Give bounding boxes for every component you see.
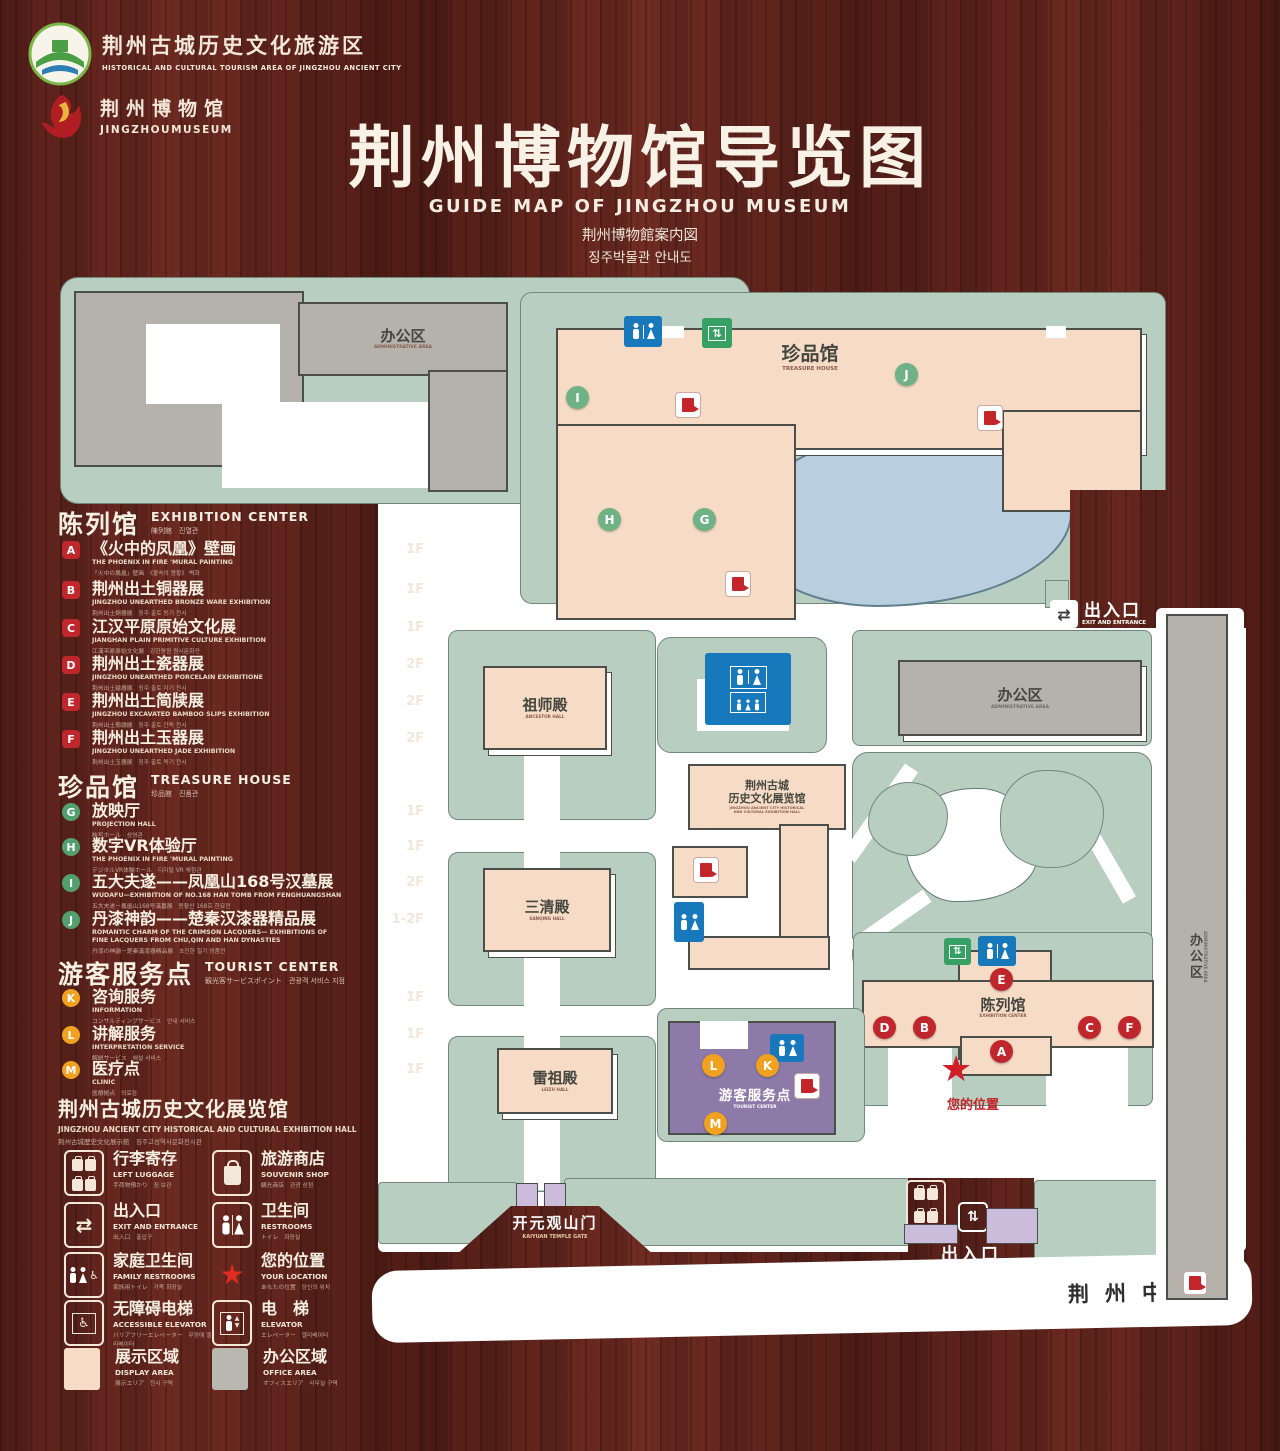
section-title-sub: 陳列館 진열관 (151, 526, 309, 536)
legend-item-l: L 讲解服务 INTERPRETATION SERVICE 解説サービス 해설 … (62, 1025, 362, 1062)
sanqing-hall-en: SANQING HALL (524, 917, 569, 922)
left-luggage-icon-map (906, 1180, 946, 1228)
leizu-hall-en: LEIZU HALL (532, 1088, 577, 1093)
badge-f: F (62, 730, 80, 748)
admin-building-north: 办公区 ADMINISTRATIVE AREA (298, 302, 508, 376)
treasure-house-south-wing (556, 424, 796, 620)
display-area-swatch (64, 1348, 100, 1390)
map-marker-f: F (1118, 1016, 1141, 1039)
map-marker-g: G (693, 508, 716, 531)
tourism-area-logo (28, 22, 92, 86)
elevator-arrows-icon-exit: ⇅ (958, 1202, 988, 1232)
badge-i: I (62, 874, 80, 892)
admin-right-cn: 办公区 (997, 686, 1042, 704)
tourism-area-emblem-icon (28, 22, 92, 86)
legend-your-location: ★ 您的位置 YOUR LOCATION あなたの位置 당신의 위치 (212, 1252, 362, 1298)
legend-item-f: F 荆州出土玉器展 JINGZHOU UNEARTHED JADE EXHIBI… (62, 729, 362, 766)
legend-item-d: D 荆州出土瓷器展 JINGZHOU UNEARTHED PORCELAIN E… (62, 655, 362, 692)
legend-accessible-elevator: ♿ 无障碍电梯 ACCESSIBLE ELEVATOR バリアフリーエレベーター… (64, 1300, 214, 1348)
exhibition-hall-south-bar (688, 936, 830, 970)
legend-elevator: ▲▼ 电 梯 ELEVATOR エレベーター 엘리베이터 (212, 1300, 362, 1346)
tourist-center-label: 游客服务点 TOURIST CENTER (690, 1084, 820, 1110)
exit-entrance-icon: ⇄ (64, 1202, 104, 1248)
legend-item-h: H 数字VR体验厅 THE PHOENIX IN FIRE 'MURAL PAI… (62, 837, 362, 874)
exhibition-hall-building: 荆州古城 历史文化展览馆 JINGZHOU ANCIENT CITY HISTO… (688, 764, 846, 830)
family-restrooms-icon: ♿ (64, 1252, 104, 1298)
legend-item-a: A 《火中的凤凰》壁画 THE PHOENIX IN FIRE 'MURAL P… (62, 540, 362, 577)
legend-item-b: B 荆州出土铜器展 JINGZHOU UNEARTHED BRONZE WARE… (62, 580, 362, 617)
elevator-icon-treasure: ⇅ (702, 318, 732, 348)
exit-marker-icon (1184, 1272, 1206, 1294)
your-location-star-icon: ★ (940, 1052, 972, 1088)
restroom-family-icon-center (705, 653, 791, 725)
admin-strip-label-en: ADMINISTRATIVE AREA (1203, 931, 1208, 983)
legend-display-area: 展示区域 DISPLAY AREA 展示エリア 전시 구역 (64, 1348, 214, 1390)
hall-title-en: JINGZHOU ANCIENT CITY HISTORICAL AND CUL… (58, 1125, 418, 1134)
map-marker-j: J (895, 363, 918, 386)
ancestor-hall-building: 祖师殿 ANCESTOR HALL (483, 666, 607, 750)
shopping-bag-icon (212, 1150, 252, 1196)
tourist-center-notch (700, 1021, 748, 1049)
gate-label-cn: 开元观山门 (440, 1212, 670, 1233)
map-marker-e: E (990, 968, 1013, 991)
admin-right-en: ADMINISTRATIVE AREA (991, 705, 1049, 710)
legend-souvenir-shop: 旅游商店 SOUVENIR SHOP 観光商店 관광 상점 (212, 1150, 362, 1196)
location-star-icon: ★ (212, 1252, 252, 1298)
legend-item-g: G 放映厅 PROJECTION HALL 映写ホール 상영관 1F (62, 802, 362, 839)
admin-right-building: 办公区 ADMINISTRATIVE AREA (898, 660, 1142, 736)
badge-k: K (62, 989, 80, 1007)
admin-strip-label-cn: 办公区 (1186, 933, 1201, 981)
badge-e: E (62, 693, 80, 711)
treasure-label-en: TREASURE HOUSE (726, 366, 894, 372)
leizu-hall-cn: 雷祖殿 (532, 1069, 577, 1087)
legend-section-treasure-house: 珍品馆 TREASURE HOUSE 珍品館 진품관 (58, 768, 292, 804)
hall-title-cn: 荆州古城历史文化展览馆 (58, 1093, 418, 1122)
map-marker-a: A (990, 1040, 1013, 1063)
office-area-swatch (212, 1348, 248, 1390)
legend-office-area: 办公区域 OFFICE AREA オフィスエリア 사무실 구역 (212, 1348, 362, 1390)
page-subtitle-ja: 荆州博物館案内図 (180, 224, 1100, 245)
section-title-en: EXHIBITION CENTER (151, 509, 309, 524)
tourist-center-cn: 游客服务点 (690, 1084, 820, 1104)
page-subtitle-en: GUIDE MAP OF JINGZHOU MUSEUM (180, 196, 1100, 217)
exhibition-hall-cn1: 荆州古城 (729, 780, 806, 793)
legend-item-j: J 丹漆神韵——楚秦汉漆器精品展 ROMANTIC CHARM OF THE C… (62, 910, 362, 955)
exhibition-center-en: EXHIBITION CENTER (958, 1014, 1048, 1019)
legend-restrooms: 卫生间 RESTROOMS トイレ 화장실 (212, 1202, 362, 1248)
exhibition-hall-en2: AND CULTURAL EXHIBITION HALL (729, 810, 806, 814)
temple-axis-path (524, 748, 560, 1190)
legend-item-m: M 医疗点 CLINIC 医療拠点 의료점 1F (62, 1060, 362, 1097)
admin-top-label-en: ADMINISTRATIVE AREA (374, 345, 432, 350)
guide-map-board: 荆州古城历史文化旅游区 HISTORICAL AND CULTURAL TOUR… (0, 0, 1280, 1451)
badge-l: L (62, 1026, 80, 1044)
office-strip-building: 办公区 ADMINISTRATIVE AREA (1166, 614, 1228, 1300)
left-luggage-icon (64, 1150, 104, 1196)
hall-title-sub: 荆州古城歴史文化展示館 징주고성역사문화전시관 (58, 1136, 418, 1146)
badge-j: J (62, 911, 80, 929)
treasure-roof-notch-2 (1046, 326, 1066, 338)
your-location-label: 您的位置 (918, 1094, 1028, 1113)
legend-section-exhibition-center: 陈列馆 EXHIBITION CENTER 陳列館 진열관 (58, 505, 309, 541)
exhibition-hall-cn2: 历史文化展览馆 (729, 793, 806, 806)
gate-label: 开元观山门 KAIYUAN TEMPLE GATE (440, 1212, 670, 1240)
restroom-icon-center-small (674, 902, 704, 942)
page-subtitle-ko: 징주박물관 안내도 (180, 246, 1100, 266)
road: 荆州中路 (371, 1253, 1252, 1343)
badge-g: G (62, 803, 80, 821)
exit-marker-icon (978, 406, 1002, 430)
tourism-area-title: 荆州古城历史文化旅游区 HISTORICAL AND CULTURAL TOUR… (102, 30, 401, 72)
tourism-area-name-en: HISTORICAL AND CULTURAL TOURISM AREA OF … (102, 64, 401, 72)
legend-left-luggage: 行李寄存 LEFT LUGGAGE 手荷物預かり 짐 보관 (64, 1150, 214, 1196)
badge-d: D (62, 656, 80, 674)
map-marker-m: M (704, 1112, 727, 1135)
ancestor-hall-en: ANCESTOR HALL (522, 715, 567, 720)
phoenix-icon (38, 90, 86, 142)
badge-c: C (62, 619, 80, 637)
gate-building-exit-south (986, 1208, 1038, 1244)
legend-hall-title: 荆州古城历史文化展览馆 JINGZHOU ANCIENT CITY HISTOR… (58, 1093, 418, 1146)
legend-exit-entrance: ⇄ 出入口 EXIT AND ENTRANCE 出入口 출입구 (64, 1202, 214, 1248)
admin-courtyard-south (222, 402, 428, 488)
ancestor-hall-cn: 祖师殿 (522, 696, 567, 714)
treasure-label-cn: 珍品馆 (781, 343, 838, 365)
exhibition-center-cn: 陈列馆 (980, 996, 1025, 1014)
legend-section-tourist-center: 游客服务点 TOURIST CENTER 観光客サービスポイント 관광객 서비스… (58, 955, 345, 991)
map-marker-l: L (702, 1054, 725, 1077)
elevator-icon: ▲▼ (212, 1300, 252, 1346)
exit-marker-icon (694, 858, 718, 882)
gate-label-en: KAIYUAN TEMPLE GATE (440, 1234, 670, 1240)
exhibition-center-label: 陈列馆 EXHIBITION CENTER (958, 996, 1048, 1019)
legend-item-k: K 咨询服务 INFORMATION コンサルティングサービス 안내 서비스 1… (62, 988, 362, 1025)
map-marker-b: B (913, 1016, 936, 1039)
treasure-house-label: 珍品馆 TREASURE HOUSE (726, 344, 894, 372)
legend-family-restrooms: ♿ 家庭卫生间 FAMILY RESTROOMS 家族用トイレ 가족 화장실 (64, 1252, 214, 1298)
legend-item-c: C 江汉平原原始文化展 JIANGHAN PLAIN PRIMITIVE CUL… (62, 618, 362, 655)
legend-item-e: E 荆州出土简牍展 JINGZHOU EXCAVATED BAMBOO SLIP… (62, 692, 362, 729)
admin-building-east-leg (428, 370, 508, 492)
sanqing-hall-cn: 三清殿 (524, 898, 569, 916)
exit-marker-icon (726, 572, 750, 596)
page-title: 荆州博物馆导览图 (180, 104, 1100, 201)
map-marker-h: H (598, 508, 621, 531)
legend-item-i: I 五大夫遂——凤凰山168号汉墓展 WUDAFU—EXHIBITION OF … (62, 873, 362, 910)
map-marker-d: D (873, 1016, 896, 1039)
leizu-hall-building: 雷祖殿 LEIZU HALL (497, 1048, 613, 1114)
exhibition-center-notch-e (1046, 1040, 1128, 1106)
sanqing-hall-building: 三清殿 SANQING HALL (483, 868, 611, 952)
admin-courtyard-notch (146, 324, 280, 404)
badge-h: H (62, 838, 80, 856)
map-marker-i: I (566, 386, 589, 409)
elevator-icon-exhibition-center: ⇅ (944, 938, 971, 965)
tourist-center-en: TOURIST CENTER (690, 1105, 820, 1110)
tourism-area-name-cn: 荆州古城历史文化旅游区 (102, 30, 401, 60)
exit-top-label-cn: 出入口 (1084, 596, 1141, 621)
gate-pillar (516, 1183, 538, 1209)
restroom-icon-treasure (624, 316, 662, 347)
map-marker-k: K (756, 1054, 779, 1077)
restrooms-icon (212, 1202, 252, 1248)
restroom-icon-exhibition-center (978, 936, 1016, 966)
badge-a: A (62, 541, 80, 559)
gate-pillar (544, 1183, 566, 1209)
exit-marker-icon (676, 393, 700, 417)
badge-b: B (62, 581, 80, 599)
exit-entrance-arrows-icon: ⇄ (1050, 600, 1078, 628)
map-marker-c: C (1078, 1016, 1101, 1039)
garden-island (868, 782, 948, 856)
admin-top-label-cn: 办公区 (380, 327, 425, 345)
badge-m: M (62, 1061, 80, 1079)
section-title-cn: 陈列馆 (58, 505, 139, 541)
exit-top-label-en: EXIT AND ENTRANCE (1082, 620, 1146, 626)
museum-logo (38, 90, 86, 142)
accessible-elevator-icon: ♿ (64, 1300, 104, 1346)
